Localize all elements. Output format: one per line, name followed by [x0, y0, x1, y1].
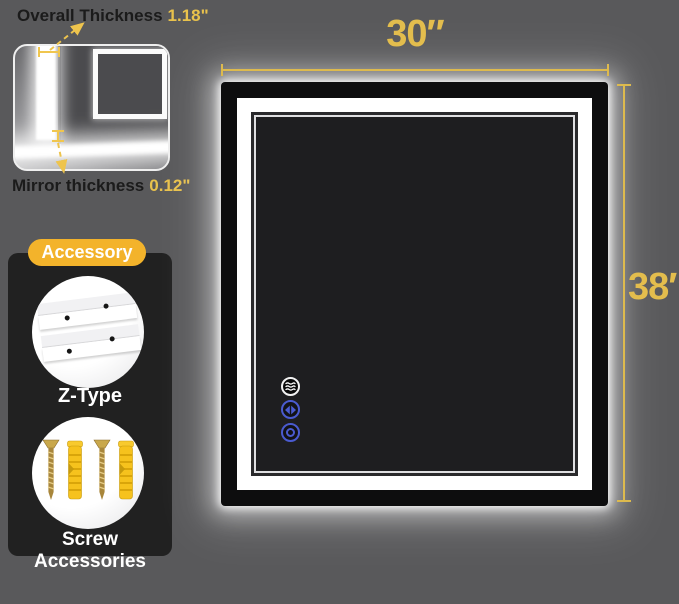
product-dimension-diagram: Overall Thickness1.18" Mirror thickness0…	[0, 0, 679, 604]
defog-icon	[281, 377, 300, 396]
accessory-badge: Accessory	[28, 239, 146, 266]
mirror-thickness-value: 0.12"	[149, 176, 190, 195]
mirror-thickness-callout: Mirror thickness0.12"	[12, 176, 190, 196]
led-mirror	[221, 82, 608, 506]
width-dimension-label: 30″	[221, 13, 609, 56]
power-ring-icon	[281, 423, 300, 442]
height-dimension-label: 38″	[628, 266, 679, 309]
mirror-thickness-label: Mirror thickness	[12, 176, 144, 195]
mirror-surface	[254, 115, 575, 473]
z-bracket-icon	[32, 276, 144, 388]
z-type-label: Z-Type	[8, 385, 172, 408]
overall-thickness-callout: Overall Thickness1.18"	[17, 6, 209, 26]
overall-thickness-label: Overall Thickness	[17, 6, 163, 25]
screw-accessories-label: Screw Accessories	[8, 529, 172, 573]
led-strip-horizontal	[13, 140, 170, 159]
z-bracket-top	[37, 292, 137, 330]
frame-gap	[251, 112, 578, 476]
screws-and-anchors-icon	[32, 417, 144, 529]
corner-detail-inset	[13, 44, 170, 171]
overall-thickness-value: 1.18"	[168, 6, 209, 25]
touch-button-column	[281, 377, 300, 442]
led-back-outline	[93, 49, 167, 119]
glass-edge-line	[58, 46, 61, 144]
light-color-diamond-icon	[281, 400, 300, 419]
width-measure-line	[221, 69, 609, 71]
led-strip-vertical	[36, 44, 56, 140]
height-measure-line	[623, 84, 625, 502]
z-bracket-bottom	[41, 324, 141, 362]
